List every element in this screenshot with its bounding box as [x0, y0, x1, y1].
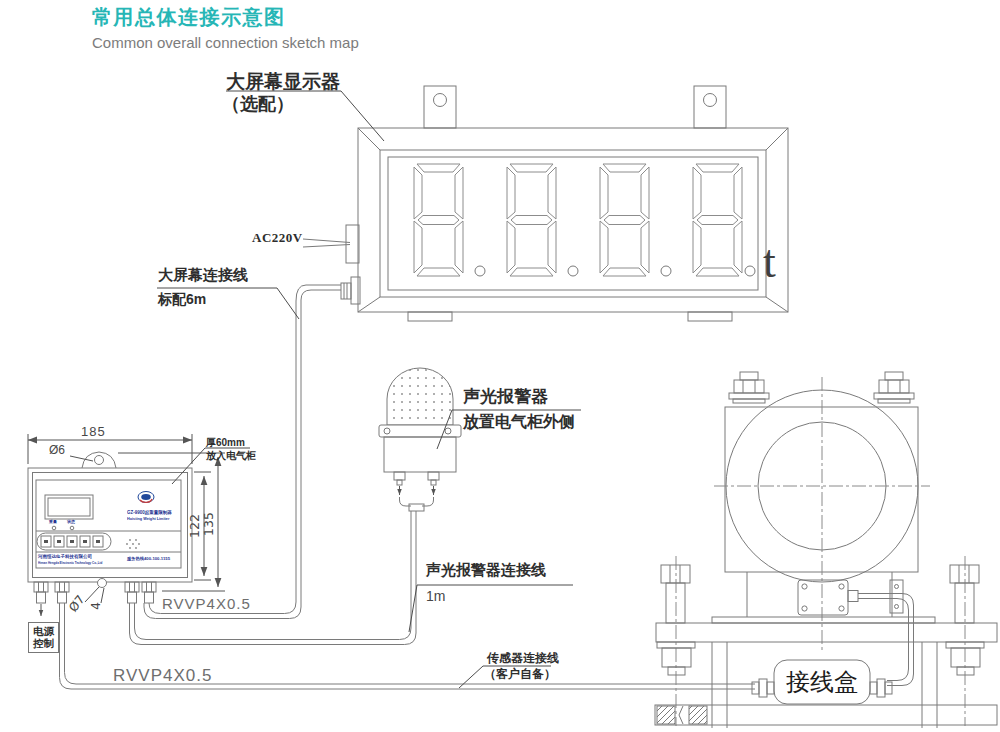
- power-control-line1: 电源: [29, 625, 58, 637]
- panel-indicator2-label: 状态: [67, 519, 75, 524]
- alarm-note-label: 放置电气柜外侧: [463, 413, 575, 431]
- controller-thickness-label: 厚60mm: [206, 437, 245, 449]
- alarm-cable-label: 声光报警器连接线: [426, 561, 546, 578]
- controller-note-label: 放入电气柜: [206, 450, 256, 462]
- power-control-line2: 控制: [29, 637, 58, 649]
- power-control-box: 电源 控制: [28, 622, 59, 653]
- alarm-cable-length-label: 1m: [426, 588, 445, 604]
- alarm-label: 声光报警器: [463, 387, 548, 407]
- display-label: 大屏幕显示器: [226, 71, 340, 93]
- ac220v-label: AC220V: [252, 231, 303, 246]
- cables: [41, 285, 755, 689]
- panel-company-en: Henan Hengda Electronic Technology Co.,L…: [38, 561, 102, 564]
- page-subtitle: Common overall connection sketch map: [92, 34, 359, 51]
- dim-panel-height: 122: [187, 514, 202, 538]
- panel-service-line: 服务热线400-100-1155: [127, 556, 170, 561]
- dim-bottom-hole-count: 4: [89, 602, 103, 610]
- panel-model-en: Hoisting Weight Limiter: [127, 517, 169, 521]
- controller-cable-glands: [34, 582, 156, 603]
- panel-company-cn: 河南恒达电子科技有限公司: [38, 554, 92, 559]
- dim-bottom-hole: Ø7: [66, 592, 88, 614]
- dim-mount-hole-label: Ø6: [49, 444, 65, 458]
- display-unit-t: t: [763, 236, 776, 289]
- diagram-line-art: 122 135 Ø7 4: [0, 0, 1000, 732]
- display-cable-type-label: RVVP4X0.5: [162, 595, 251, 612]
- panel-indicator1-label: 重量: [49, 519, 57, 524]
- dim-width-label: 185: [81, 425, 106, 440]
- sensor-cable-note-label: （客户自备）: [484, 668, 556, 682]
- display-unit-drawing: [303, 86, 788, 321]
- junction-box-label: 接线盒: [774, 660, 870, 704]
- sensor-cable-label: 传感器连接线: [487, 652, 559, 666]
- display-cable-spec-label: 标配6m: [158, 291, 206, 307]
- dim-total-height: 135: [201, 512, 216, 536]
- page-title: 常用总体连接示意图: [92, 6, 286, 29]
- seven-segment-digits: [414, 164, 755, 276]
- display-cable-label: 大屏幕连接线: [158, 266, 248, 283]
- diagram-page: 122 135 Ø7 4: [0, 0, 1000, 732]
- panel-model-cn: GZ-9900起重量限制器: [127, 510, 172, 515]
- controller-drawing: [28, 452, 192, 603]
- sensor-cable-type-label: RVVP4X0.5: [113, 666, 212, 686]
- alarm-drawing: [379, 368, 461, 511]
- display-option-label: （选配）: [222, 94, 294, 115]
